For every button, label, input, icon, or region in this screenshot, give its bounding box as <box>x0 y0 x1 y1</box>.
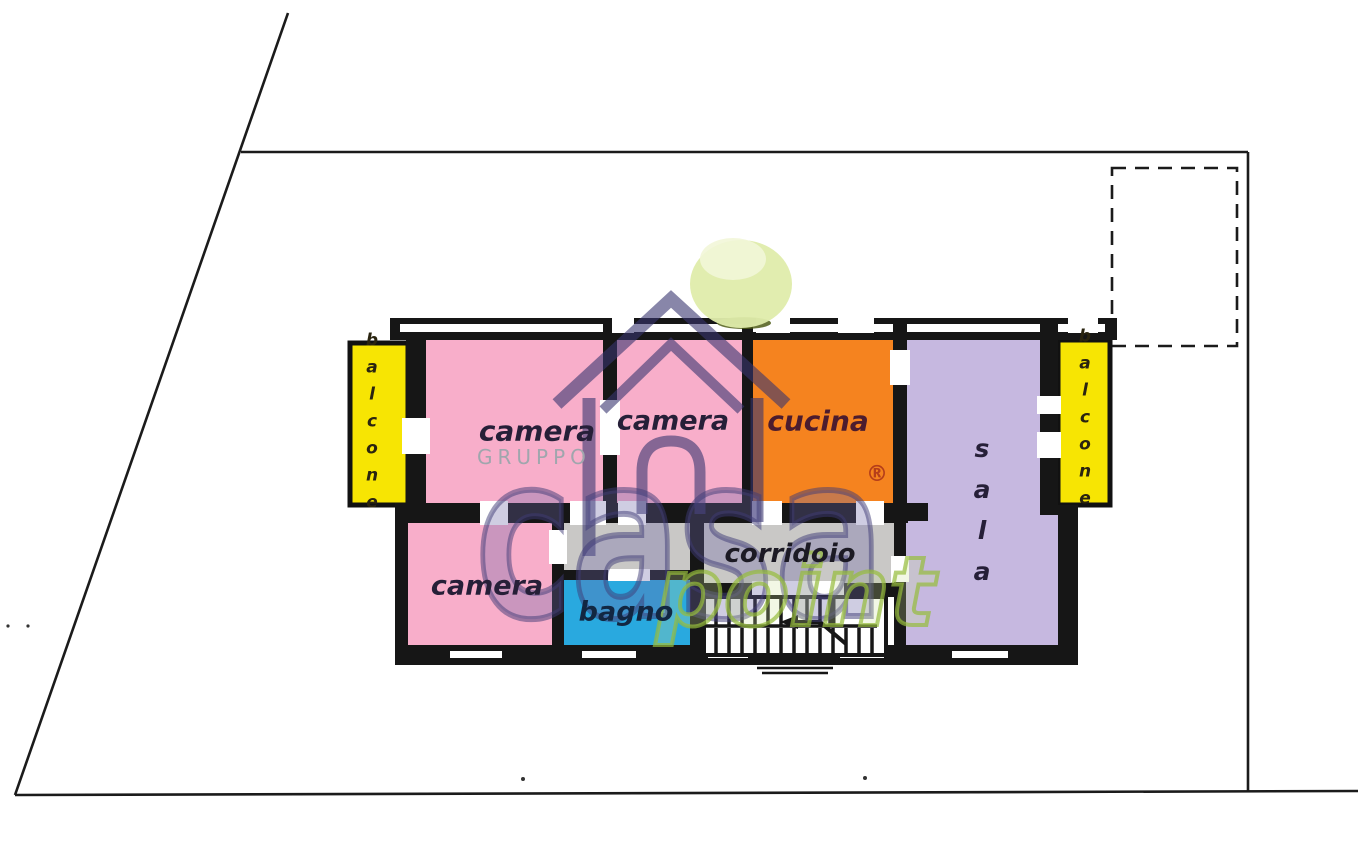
room-camera-bottom-left <box>408 521 552 647</box>
wall-cavity <box>907 324 1040 332</box>
floor-plan-page: casa point GRUPPO ® camera camera cucina… <box>0 0 1366 858</box>
survey-dot <box>863 776 867 780</box>
wall-bagno-stairs <box>690 521 704 664</box>
door-camera3 <box>549 530 567 564</box>
room-cucina <box>751 338 893 505</box>
door-balcone-left <box>402 418 430 454</box>
room-camera-top-middle <box>616 338 742 510</box>
annex-dashed-outline <box>1097 168 1237 346</box>
window-top <box>1068 317 1098 333</box>
wall-corridoio-sala <box>894 521 906 665</box>
door-sala-balcone-2 <box>1037 432 1061 458</box>
wall-sala-balcone <box>1040 333 1058 515</box>
window-bottom <box>952 651 1008 658</box>
annex-rect <box>1112 168 1237 346</box>
window-bottom <box>450 651 502 658</box>
room-bagno <box>564 580 690 648</box>
logo-ball-highlight <box>700 238 766 280</box>
door-camera1-hall <box>480 501 508 525</box>
door-bagno <box>608 569 650 581</box>
survey-dot <box>26 624 29 627</box>
survey-dot <box>6 624 9 627</box>
wall-cavity <box>400 324 603 332</box>
window-bottom <box>582 651 636 658</box>
room-balcone-right <box>1058 340 1110 505</box>
floor-plan-drawing <box>0 0 1366 858</box>
door-row-gap <box>856 501 884 525</box>
window-top <box>838 317 874 333</box>
lot-boundary-diagonal <box>15 13 288 795</box>
room-camera-top-left <box>426 338 603 508</box>
entry-steps <box>757 668 833 673</box>
wall-row-divider <box>395 503 908 523</box>
survey-dot <box>521 777 525 781</box>
door-landing-sala <box>891 556 909 582</box>
room-corridoio <box>704 521 894 583</box>
wall-left-lower <box>395 508 408 664</box>
door-sala-balcone-1 <box>1037 396 1061 414</box>
wall-sala-stub <box>900 503 928 521</box>
lot-boundary-bottom <box>15 791 1358 795</box>
room-sala <box>906 338 1058 652</box>
door-cucina-sala <box>890 350 910 385</box>
wall-right-lower <box>1058 505 1078 665</box>
room-balcone-left <box>350 343 408 505</box>
